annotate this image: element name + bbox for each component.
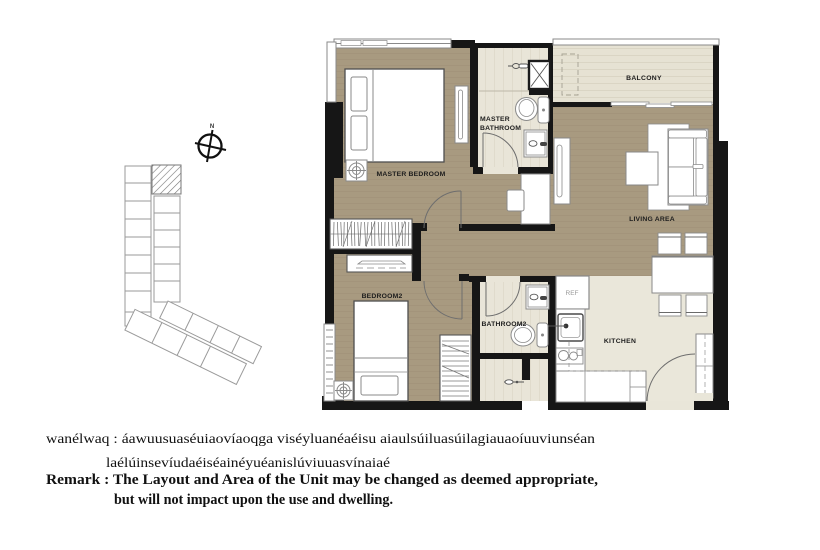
svg-text:MASTER BEDROOM: MASTER BEDROOM — [377, 171, 446, 178]
svg-text:REF: REF — [566, 290, 579, 297]
svg-text:LIVING AREA: LIVING AREA — [629, 216, 675, 223]
svg-text:wanélwaq : áawuusuaséuiaovíaoq: wanélwaq : áawuusuaséuiaovíaoqga viséylu… — [46, 431, 595, 446]
svg-text:but will not impact upon the u: but will not impact upon the use and dwe… — [114, 492, 393, 508]
svg-text:KITCHEN: KITCHEN — [604, 338, 636, 345]
svg-text:MASTER: MASTER — [480, 116, 510, 123]
svg-text:N: N — [210, 124, 214, 130]
svg-text:Remark : The Layout and Area o: Remark : The Layout and Area of the Unit… — [46, 472, 598, 488]
svg-text:BEDROOM2: BEDROOM2 — [362, 293, 403, 300]
svg-text:laélúinsevíudaéiséainéyuéanisl: laélúinsevíudaéiséainéyuéanislúviuuasvín… — [106, 455, 390, 470]
svg-text:BATHROOM2: BATHROOM2 — [481, 321, 526, 328]
svg-text:BATHROOM: BATHROOM — [480, 125, 521, 132]
svg-text:BALCONY: BALCONY — [626, 75, 662, 82]
